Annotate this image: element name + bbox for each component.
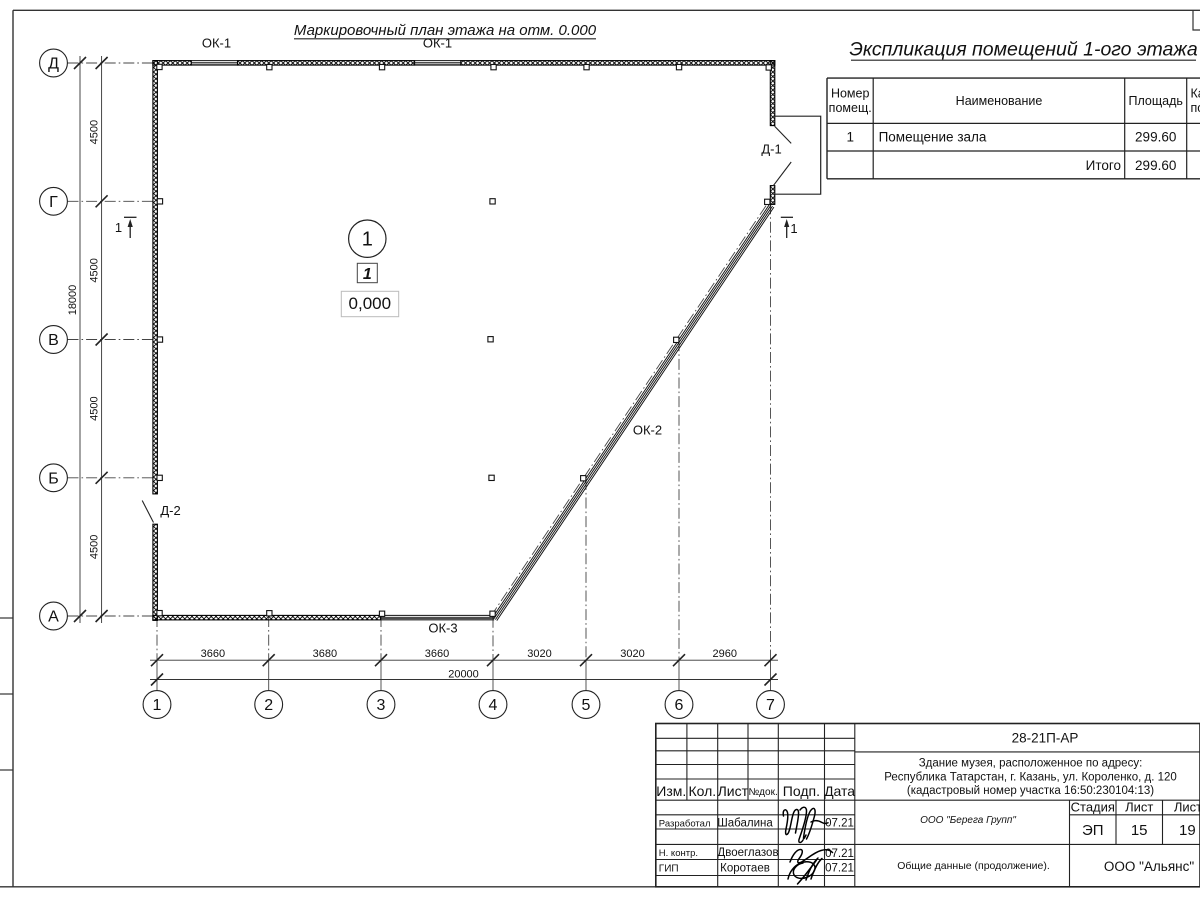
svg-text:20000: 20000 <box>448 669 479 681</box>
svg-text:0,000: 0,000 <box>349 294 392 313</box>
svg-text:№док.: №док. <box>748 787 777 798</box>
svg-text:Категория: Категория <box>1191 87 1200 101</box>
svg-text:19: 19 <box>1179 822 1196 839</box>
svg-text:помещени: помещени <box>1191 101 1200 115</box>
svg-text:Разработал: Разработал <box>659 819 711 830</box>
svg-text:1: 1 <box>115 220 122 235</box>
svg-text:Н. контр.: Н. контр. <box>659 848 698 859</box>
svg-text:Лист: Лист <box>718 783 749 799</box>
svg-text:Номер: Номер <box>831 87 870 101</box>
svg-text:15: 15 <box>1131 822 1148 839</box>
svg-text:Республика Татарстан, г. Казан: Республика Татарстан, г. Казань, ул. Кор… <box>884 772 1177 784</box>
svg-text:4500: 4500 <box>89 120 101 144</box>
svg-text:Б: Б <box>48 470 59 487</box>
svg-text:4500: 4500 <box>89 258 101 282</box>
svg-text:4500: 4500 <box>89 396 101 420</box>
svg-text:Общие данные (продолжение).: Общие данные (продолжение). <box>897 860 1050 872</box>
svg-text:Площадь: Площадь <box>1128 94 1182 108</box>
svg-text:Здание музея, расположенное по: Здание музея, расположенное по адресу: <box>919 758 1143 770</box>
svg-text:Подп.: Подп. <box>783 783 820 799</box>
svg-text:3020: 3020 <box>527 648 551 660</box>
svg-text:Стадия: Стадия <box>1071 800 1115 815</box>
svg-text:18000: 18000 <box>67 285 79 316</box>
svg-text:Кол.: Кол. <box>688 783 716 799</box>
svg-text:1: 1 <box>790 221 797 236</box>
svg-text:ОК-3: ОК-3 <box>428 621 457 636</box>
svg-text:помещ.: помещ. <box>829 101 872 115</box>
svg-text:3660: 3660 <box>425 648 449 660</box>
svg-text:Дата: Дата <box>824 783 855 799</box>
svg-text:Листов: Листов <box>1174 800 1200 815</box>
svg-text:ОК-1: ОК-1 <box>202 36 231 51</box>
svg-text:ОК-2: ОК-2 <box>633 423 662 438</box>
svg-text:3: 3 <box>377 697 386 714</box>
svg-text:Шабалина: Шабалина <box>717 818 773 830</box>
svg-text:Коротаев: Коротаев <box>720 863 770 875</box>
svg-text:Экспликация помещений 1-ого эт: Экспликация помещений 1-ого этажа <box>849 39 1198 61</box>
svg-text:3020: 3020 <box>620 648 644 660</box>
svg-text:Наименование: Наименование <box>956 94 1043 108</box>
svg-text:6: 6 <box>675 697 684 714</box>
svg-text:Д: Д <box>48 56 59 73</box>
svg-text:1: 1 <box>846 130 854 145</box>
svg-text:Д-1: Д-1 <box>761 142 781 157</box>
svg-text:ОК-1: ОК-1 <box>423 36 452 51</box>
svg-text:2960: 2960 <box>713 648 737 660</box>
svg-text:Изм.: Изм. <box>656 783 686 799</box>
svg-text:4: 4 <box>489 697 498 714</box>
svg-text:Лист: Лист <box>1125 800 1153 815</box>
svg-text:В: В <box>48 332 59 349</box>
svg-text:Г: Г <box>49 194 58 211</box>
svg-text:А: А <box>48 609 59 626</box>
svg-text:ГИП: ГИП <box>659 864 679 875</box>
svg-text:Двоеглазов: Двоеглазов <box>717 847 778 859</box>
svg-text:7: 7 <box>766 697 775 714</box>
svg-text:4500: 4500 <box>89 535 101 559</box>
svg-text:Д-2: Д-2 <box>160 503 180 518</box>
svg-text:Помещение зала: Помещение зала <box>879 130 987 145</box>
svg-text:3680: 3680 <box>313 648 337 660</box>
svg-text:3660: 3660 <box>201 648 225 660</box>
svg-text:07.21: 07.21 <box>825 818 854 830</box>
svg-text:1: 1 <box>362 229 373 251</box>
svg-text:ЭП: ЭП <box>1082 822 1104 839</box>
svg-text:2: 2 <box>264 697 273 714</box>
svg-text:ООО "Альянс": ООО "Альянс" <box>1104 859 1194 874</box>
svg-text:ООО "Берега Групп": ООО "Берега Групп" <box>920 815 1016 826</box>
svg-text:Итого: Итого <box>1086 158 1121 173</box>
svg-text:07.21: 07.21 <box>825 863 854 875</box>
svg-text:5: 5 <box>582 697 591 714</box>
svg-text:1: 1 <box>363 266 372 283</box>
svg-text:28-21П-АР: 28-21П-АР <box>1012 731 1079 746</box>
svg-text:1: 1 <box>153 697 162 714</box>
svg-text:(кадастровый номер участка 16:: (кадастровый номер участка 16:50:230104:… <box>907 785 1154 797</box>
svg-text:299.60: 299.60 <box>1135 130 1176 145</box>
svg-text:299.60: 299.60 <box>1135 158 1176 173</box>
